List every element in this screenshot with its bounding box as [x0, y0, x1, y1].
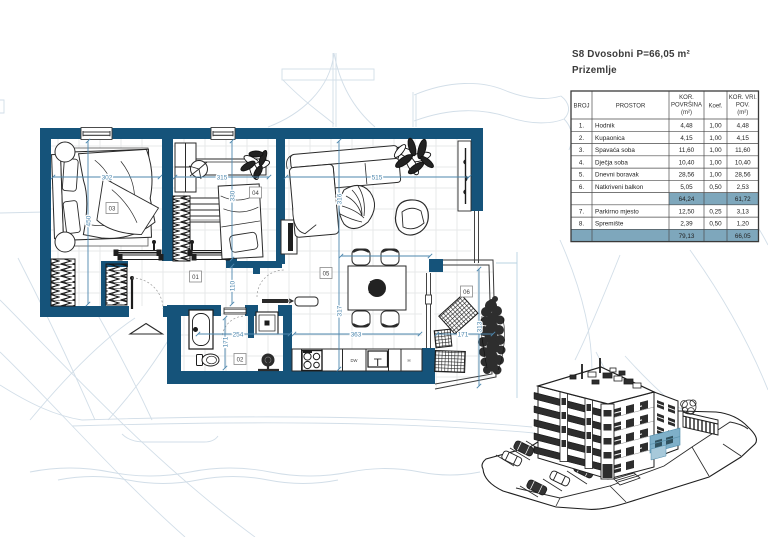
svg-text:Dječja soba: Dječja soba	[595, 159, 628, 166]
svg-text:1,00: 1,00	[709, 159, 722, 166]
svg-text:03: 03	[109, 206, 116, 212]
svg-text:5,05: 5,05	[680, 184, 693, 191]
svg-text:11,60: 11,60	[679, 147, 695, 154]
svg-text:7.: 7.	[579, 208, 585, 215]
svg-text:79,13: 79,13	[679, 233, 695, 240]
svg-text:110: 110	[230, 280, 237, 291]
svg-text:1,20: 1,20	[737, 221, 750, 228]
svg-text:(m²): (m²)	[737, 110, 748, 116]
svg-text:450: 450	[86, 215, 93, 226]
svg-text:12,50: 12,50	[679, 208, 695, 215]
svg-text:Hodnik: Hodnik	[595, 123, 615, 130]
svg-text:S8 Dvosobni P=66,05 m²: S8 Dvosobni P=66,05 m²	[572, 49, 690, 60]
svg-text:3,13: 3,13	[737, 208, 750, 215]
svg-text:0,25: 0,25	[709, 208, 722, 215]
svg-text:8.: 8.	[579, 221, 585, 228]
svg-text:11,60: 11,60	[735, 147, 751, 154]
svg-text:2,39: 2,39	[680, 221, 693, 228]
svg-text:316: 316	[337, 193, 344, 204]
svg-text:POV.: POV.	[736, 103, 750, 109]
svg-text:2,53: 2,53	[737, 184, 750, 191]
svg-text:313: 313	[477, 321, 484, 332]
svg-text:Spavaća soba: Spavaća soba	[595, 147, 635, 154]
svg-text:64,24: 64,24	[679, 196, 695, 203]
svg-text:04: 04	[252, 191, 259, 197]
svg-text:H: H	[407, 358, 410, 363]
svg-text:Koef.: Koef.	[708, 104, 722, 110]
svg-text:Spremište: Spremište	[595, 221, 624, 228]
svg-text:BROJ: BROJ	[573, 104, 589, 110]
svg-text:254: 254	[233, 332, 244, 339]
svg-text:3.: 3.	[579, 147, 585, 154]
svg-text:4.: 4.	[579, 159, 585, 166]
svg-text:28,56: 28,56	[679, 172, 695, 179]
svg-text:01: 01	[192, 275, 199, 281]
svg-text:171: 171	[458, 332, 469, 339]
svg-text:363: 363	[351, 332, 362, 339]
svg-text:171: 171	[223, 336, 230, 347]
svg-text:06: 06	[463, 290, 470, 296]
svg-text:330: 330	[230, 190, 237, 201]
svg-text:PROSTOR: PROSTOR	[616, 104, 646, 110]
svg-text:1,00: 1,00	[709, 172, 722, 179]
svg-text:1.: 1.	[579, 123, 585, 130]
svg-text:0,50: 0,50	[709, 184, 722, 191]
svg-text:2.: 2.	[579, 135, 585, 142]
svg-text:4,15: 4,15	[737, 135, 750, 142]
svg-text:6.: 6.	[579, 184, 585, 191]
svg-text:DW: DW	[351, 358, 358, 363]
svg-text:KOR. VRI.: KOR. VRI.	[729, 95, 757, 101]
svg-text:0,50: 0,50	[709, 221, 722, 228]
svg-text:302: 302	[102, 175, 113, 182]
svg-text:4,15: 4,15	[680, 135, 693, 142]
svg-text:Parkirno mjesto: Parkirno mjesto	[595, 208, 639, 215]
svg-text:Kupaonica: Kupaonica	[595, 135, 625, 142]
svg-text:Prizemlje: Prizemlje	[572, 65, 617, 76]
svg-text:Dnevni boravak: Dnevni boravak	[595, 172, 640, 179]
svg-text:515: 515	[372, 175, 383, 182]
svg-text:05: 05	[323, 271, 330, 277]
svg-text:10,40: 10,40	[679, 159, 695, 166]
svg-text:1,00: 1,00	[709, 147, 722, 154]
svg-text:1,00: 1,00	[709, 135, 722, 142]
svg-text:Natkriveni balkon: Natkriveni balkon	[595, 184, 644, 191]
svg-text:61,72: 61,72	[735, 196, 751, 203]
svg-text:28,56: 28,56	[735, 172, 751, 179]
svg-text:66,05: 66,05	[735, 233, 751, 240]
svg-text:02: 02	[237, 357, 244, 363]
svg-text:315: 315	[217, 175, 228, 182]
svg-text:10,40: 10,40	[735, 159, 751, 166]
svg-text:317: 317	[337, 305, 344, 316]
svg-text:5.: 5.	[579, 172, 585, 179]
svg-text:4,48: 4,48	[680, 123, 693, 130]
svg-text:KOR.: KOR.	[679, 95, 694, 101]
svg-text:(m²): (m²)	[681, 110, 692, 116]
svg-text:POVRŠINA: POVRŠINA	[671, 102, 702, 109]
svg-text:1,00: 1,00	[709, 123, 722, 130]
svg-text:4,48: 4,48	[737, 123, 750, 130]
